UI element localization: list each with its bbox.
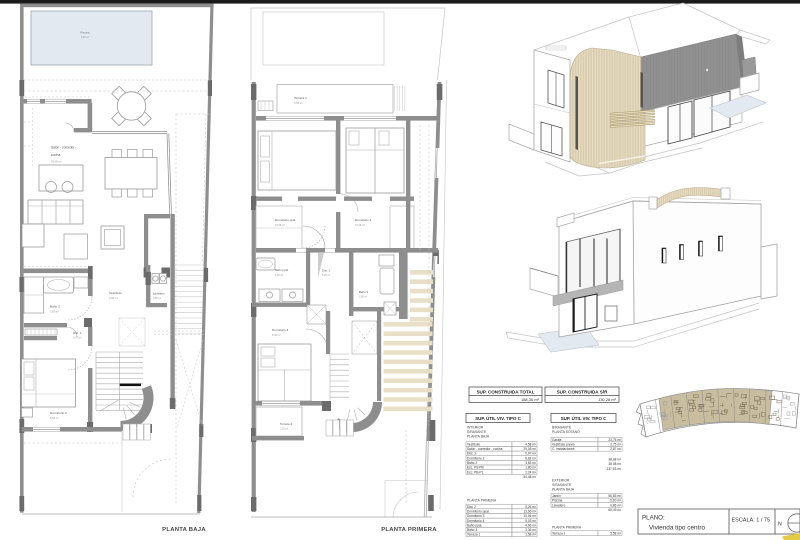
svg-text:Baño 3: Baño 3: [467, 528, 477, 532]
svg-text:29,08 m²: 29,08 m²: [523, 447, 536, 451]
svg-text:Piscina: Piscina: [80, 31, 90, 35]
svg-text:1,58 m²: 1,58 m²: [525, 533, 536, 537]
svg-text:Piscina: Piscina: [552, 499, 563, 503]
svg-text:SUP. ÚTIL VIV. TIPO C: SUP. ÚTIL VIV. TIPO C: [561, 416, 607, 421]
svg-text:Vivienda tipo centro: Vivienda tipo centro: [649, 525, 705, 532]
svg-text:2,24 m²: 2,24 m²: [525, 470, 536, 474]
svg-text:1,80 m²: 1,80 m²: [525, 466, 536, 470]
svg-text:5,58 m²: 5,58 m²: [610, 531, 621, 535]
svg-text:N: N: [778, 522, 782, 528]
svg-text:Baño 2: Baño 2: [50, 305, 60, 309]
svg-text:Dist. 1: Dist. 1: [467, 452, 476, 456]
svg-text:Terraza 1: Terraza 1: [552, 531, 566, 535]
svg-text:Dormitorio ppal.: Dormitorio ppal.: [275, 218, 296, 222]
svg-text:Dormitorio ppal.: Dormitorio ppal.: [467, 509, 490, 513]
svg-text:4,58 m²: 4,58 m²: [525, 442, 536, 446]
svg-text:2,32 m²: 2,32 m²: [280, 428, 288, 431]
svg-text:8,82 m²: 8,82 m²: [50, 416, 59, 420]
svg-text:3,36 m²: 3,36 m²: [525, 528, 536, 532]
svg-text:130,28 m²: 130,28 m²: [598, 397, 617, 402]
svg-text:Lavadero: Lavadero: [552, 503, 566, 507]
svg-text:2,75 m²: 2,75 m²: [610, 442, 621, 446]
svg-text:29,08 m²: 29,08 m²: [51, 160, 62, 164]
svg-text:Baño 2: Baño 2: [467, 461, 477, 465]
svg-text:5,00 m²: 5,00 m²: [610, 499, 621, 503]
svg-text:3,36 m²: 3,36 m²: [359, 296, 367, 299]
svg-text:0,86 m²: 0,86 m²: [153, 297, 161, 300]
svg-text:54,48 m²: 54,48 m²: [523, 475, 536, 479]
svg-text:PLANTA PRIMERA: PLANTA PRIMERA: [381, 527, 437, 533]
svg-text:Dormitorio 3: Dormitorio 3: [467, 514, 485, 518]
svg-text:PLANTA BAJA: PLANTA BAJA: [467, 434, 490, 438]
svg-text:2,87 m²: 2,87 m²: [610, 447, 621, 451]
svg-text:B/RASANTE: B/RASANTE: [552, 425, 572, 429]
svg-text:4,66 m²: 4,66 m²: [525, 523, 536, 527]
svg-text:S/RASANTE: S/RASANTE: [552, 483, 572, 487]
svg-text:Lavadero: Lavadero: [153, 292, 165, 296]
svg-text:0,97 m²: 0,97 m²: [73, 337, 82, 340]
svg-text:0,86 m²: 0,86 m²: [610, 503, 621, 507]
svg-text:5,00 m²: 5,00 m²: [81, 36, 89, 39]
svg-text:INTERIOR: INTERIOR: [467, 425, 484, 429]
svg-text:SUP. CONSTRUIDA S/R: SUP. CONSTRUIDA S/R: [557, 389, 608, 394]
svg-text:Terraza 1: Terraza 1: [467, 533, 481, 537]
svg-text:13,66 m²: 13,66 m²: [275, 224, 285, 227]
svg-text:9,03 m²: 9,03 m²: [525, 519, 536, 523]
svg-text:ESCALA: 1 / 75: ESCALA: 1 / 75: [732, 518, 771, 524]
svg-text:5,58 m²: 5,58 m²: [294, 101, 303, 105]
svg-text:SUP. ÚTIL VIV. TIPO C: SUP. ÚTIL VIV. TIPO C: [475, 416, 521, 421]
svg-text:3,83 m²: 3,83 m²: [525, 461, 536, 465]
svg-text:38,08 m²: 38,08 m²: [608, 458, 621, 462]
svg-text:137,53 m²: 137,53 m²: [607, 467, 621, 471]
svg-text:Dormitorio 4: Dormitorio 4: [467, 519, 485, 523]
svg-text:23,75 m²: 23,75 m²: [608, 438, 621, 442]
svg-text:Garaje: Garaje: [552, 438, 562, 442]
svg-text:Dormitorio 3: Dormitorio 3: [355, 218, 372, 222]
svg-text:cocina: cocina: [51, 153, 60, 157]
svg-text:Dormitorio 4: Dormitorio 4: [272, 328, 289, 332]
svg-text:PLANTA PRIMERA: PLANTA PRIMERA: [552, 526, 582, 530]
svg-text:Terraza 1: Terraza 1: [294, 96, 307, 100]
svg-text:188,30 m²: 188,30 m²: [521, 397, 540, 402]
svg-text:3,83 m²: 3,83 m²: [50, 310, 59, 314]
svg-text:38,08 m²: 38,08 m²: [608, 462, 621, 466]
svg-text:13,66 m²: 13,66 m²: [523, 509, 536, 513]
svg-text:PLANTA BAJA: PLANTA BAJA: [552, 488, 575, 492]
svg-text:9,03 m²: 9,03 m²: [272, 334, 281, 337]
svg-text:10,06 m²: 10,06 m²: [523, 514, 536, 518]
svg-text:Vestíbulo: Vestíbulo: [109, 291, 122, 295]
svg-text:Dormitorio 2: Dormitorio 2: [50, 411, 67, 415]
svg-text:Salón - comedor - cocina: Salón - comedor - cocina: [467, 447, 503, 451]
svg-text:Esc. PS-PB: Esc. PS-PB: [467, 466, 484, 470]
svg-text:PLANTA BAJA: PLANTA BAJA: [162, 527, 206, 533]
svg-text:Baño ppal.: Baño ppal.: [275, 268, 289, 272]
svg-text:Terraza 2: Terraza 2: [280, 422, 292, 426]
svg-text:Baño ppal.: Baño ppal.: [467, 523, 482, 527]
svg-text:Baño 3: Baño 3: [359, 290, 369, 294]
svg-text:4,66 m²: 4,66 m²: [275, 274, 283, 277]
svg-text:PLANTA SÓTANO: PLANTA SÓTANO: [552, 429, 580, 434]
svg-text:EXTERIOR: EXTERIOR: [552, 479, 570, 483]
svg-text:10,06 m²: 10,06 m²: [355, 224, 365, 227]
svg-text:Dist. 1: Dist. 1: [73, 331, 82, 335]
svg-text:Salón - comedor -: Salón - comedor -: [51, 146, 76, 150]
svg-text:Vestíbulo: Vestíbulo: [467, 442, 480, 446]
svg-text:Dist. 2: Dist. 2: [322, 269, 331, 273]
svg-text:C. instalaciones: C. instalaciones: [552, 447, 575, 451]
svg-text:5,26 m²: 5,26 m²: [322, 274, 330, 277]
svg-text:Dist. 2: Dist. 2: [467, 505, 476, 509]
svg-text:65,49 m²: 65,49 m²: [608, 508, 621, 512]
svg-text:PLANO:: PLANO:: [642, 515, 665, 522]
svg-text:56,83 m²: 56,83 m²: [608, 494, 621, 498]
svg-text:Jardín: Jardín: [552, 494, 561, 498]
svg-text:5,26 m²: 5,26 m²: [525, 505, 536, 509]
svg-text:4,58 m²: 4,58 m²: [109, 296, 118, 300]
svg-text:8,82 m²: 8,82 m²: [525, 456, 536, 460]
svg-text:Vestíbulo previo: Vestíbulo previo: [552, 442, 575, 446]
svg-text:Dormitorio 2: Dormitorio 2: [467, 456, 485, 460]
svg-text:PLANTA PRIMERA: PLANTA PRIMERA: [467, 499, 497, 503]
svg-text:0,97 m²: 0,97 m²: [525, 452, 536, 456]
svg-text:Esc. PB-P1: Esc. PB-P1: [467, 470, 484, 474]
svg-text:SUP. CONSTRUIDA TOTAL: SUP. CONSTRUIDA TOTAL: [476, 389, 534, 394]
svg-text:S/RASANTE: S/RASANTE: [467, 430, 487, 434]
